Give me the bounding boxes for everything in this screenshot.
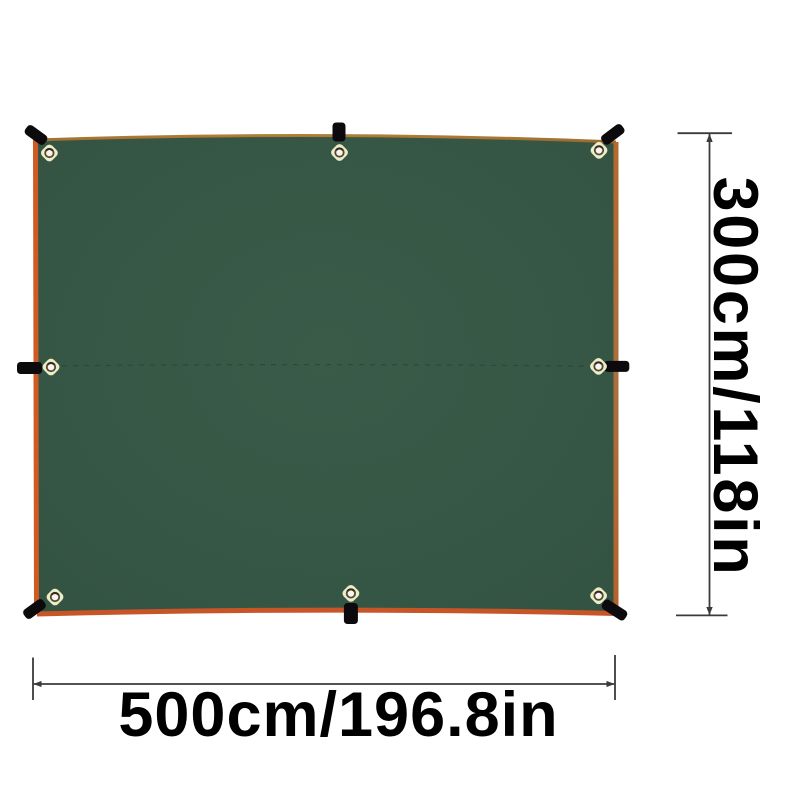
svg-text:300cm/118in: 300cm/118in xyxy=(700,177,770,578)
svg-text:500cm/196.8in: 500cm/196.8in xyxy=(118,680,558,750)
